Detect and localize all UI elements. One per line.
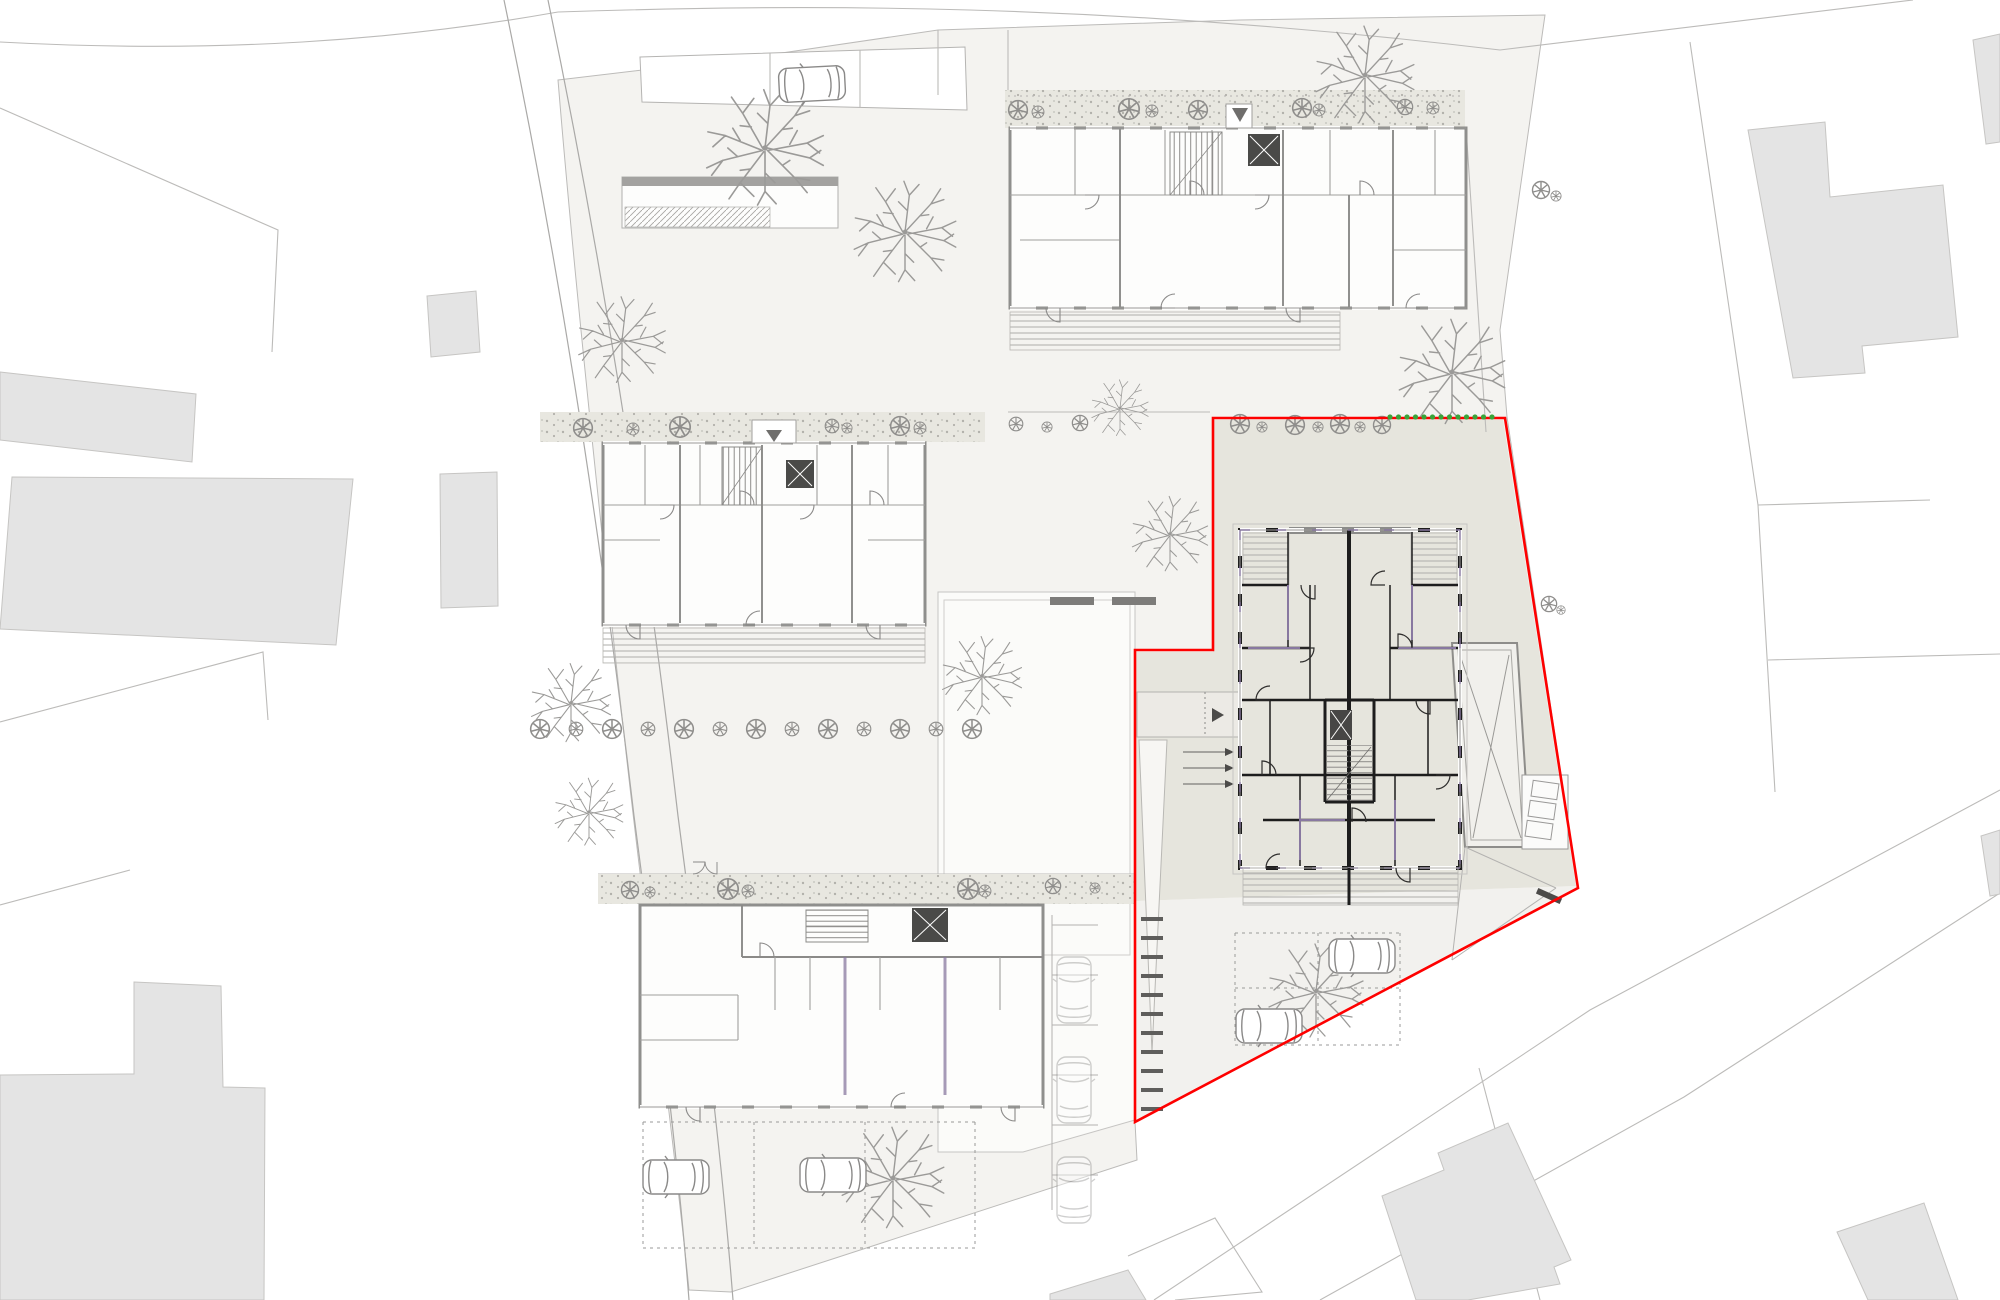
terrace-deck [603,628,925,663]
green-dot [1387,414,1392,419]
elevator [912,908,948,942]
balcony-northeast [1411,533,1457,585]
elevator [1248,134,1280,166]
building-west [603,420,925,663]
green-dot [1404,414,1409,419]
green-dot [1464,414,1469,419]
green-dot [1481,414,1486,419]
green-dot [1438,414,1443,419]
stall-dash [1141,936,1163,940]
entrance-porch [752,420,796,443]
car-icon [800,1154,866,1196]
stall-dash [1141,1050,1163,1054]
neighbor-building [440,472,498,608]
green-dot [1455,414,1460,419]
stall-dash [1141,974,1163,978]
entrance-porch [1226,104,1252,128]
courtyard-bench [1050,597,1094,605]
green-dot [1447,414,1452,419]
green-dot [1396,414,1401,419]
stall-dash [1141,1088,1163,1092]
car-icon [1053,1057,1095,1123]
stair-core [806,910,868,942]
neighbor-building [427,291,480,357]
stall-dash [1141,1031,1163,1035]
green-dot [1472,414,1477,419]
green-dot [1489,414,1494,419]
building-west-walls [603,443,925,625]
building-north-walls [1010,128,1466,308]
stall-dash [1141,1012,1163,1016]
neighbor-building [0,477,353,645]
stall-dash [1141,993,1163,997]
stair-core [722,447,762,505]
car-icon [778,61,846,106]
entrance-bridge [1137,692,1240,737]
garage-ramp [1452,643,1530,847]
site-plan-page [0,0,2000,1300]
elevator [1330,710,1352,740]
stall-dash [1141,917,1163,921]
car-icon [1053,957,1095,1023]
stall-dash [1141,955,1163,959]
site-plan-canvas [0,0,2000,1300]
car-icon [1053,1157,1095,1223]
car-icon [1329,935,1395,977]
stall-dash [1141,1069,1163,1073]
green-dot [1430,414,1435,419]
car-icon [643,1156,709,1198]
balcony-northwest [1243,533,1289,585]
green-dot [1413,414,1418,419]
car-icon [1236,1005,1302,1047]
stair-core [1170,132,1222,195]
planting-bed [622,177,838,228]
elevator [786,460,814,488]
courtyard-bench [1112,597,1156,605]
green-dot [1421,414,1426,419]
